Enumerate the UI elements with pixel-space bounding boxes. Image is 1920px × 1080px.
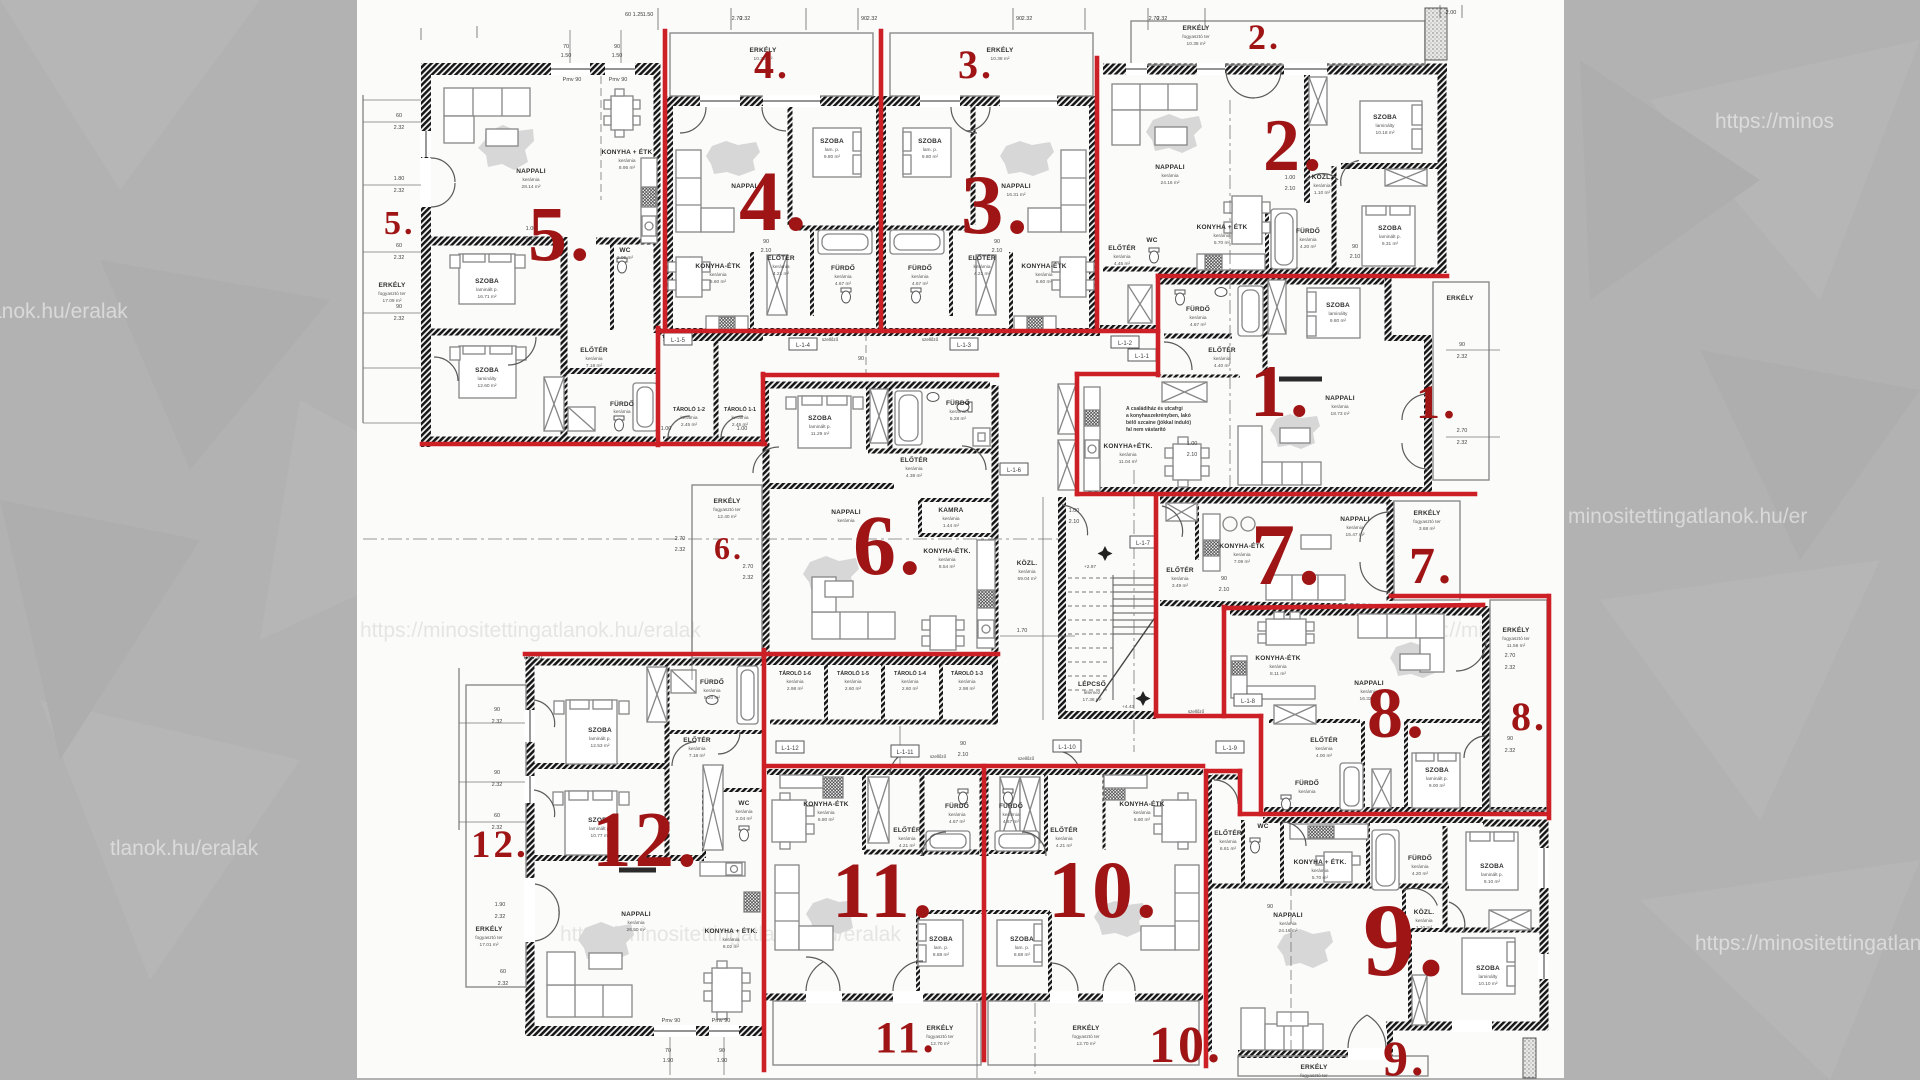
svg-text:TÁROLÓ 1-5: TÁROLÓ 1-5 [837, 669, 869, 677]
svg-text:kerámia: kerámia [1189, 315, 1206, 321]
svg-text:ELŐTÉR: ELŐTÉR [1208, 345, 1236, 354]
svg-text:fogyasztó ter: fogyasztó ter [713, 507, 741, 513]
svg-text:9.31 m²: 9.31 m² [1382, 241, 1399, 247]
svg-text:SZOBA: SZOBA [475, 278, 499, 285]
svg-text:SZOBA: SZOBA [820, 138, 844, 145]
svg-text:ELŐTÉR: ELŐTÉR [900, 455, 928, 464]
svg-text:12.60 m²: 12.60 m² [478, 383, 497, 389]
svg-text:KONYHA + ÉTK: KONYHA + ÉTK [1197, 222, 1248, 231]
svg-text:8.: 8. [1367, 673, 1427, 753]
svg-text:ERKÉLY: ERKÉLY [1183, 23, 1210, 32]
svg-text:kerámia: kerámia [1133, 810, 1150, 816]
svg-text:4.00 m²: 4.00 m² [1316, 753, 1333, 759]
svg-text:KONYHA + ÉTK: KONYHA + ÉTK [602, 147, 653, 156]
svg-text:10.38 m²: 10.38 m² [1187, 41, 1206, 47]
svg-text:90: 90 [1352, 244, 1358, 250]
svg-text:9.00 m²: 9.00 m² [1429, 783, 1446, 789]
svg-text:10.: 10. [1149, 1017, 1223, 1074]
svg-text:kerámia: kerámia [1171, 576, 1188, 582]
svg-text:KONYHA-ÉTK: KONYHA-ÉTK [1255, 653, 1300, 662]
svg-text:KONYHA-ÉTK: KONYHA-ÉTK [695, 261, 740, 270]
svg-text:kerámia: kerámia [735, 809, 752, 815]
svg-text:9.80 m²: 9.80 m² [922, 154, 939, 160]
svg-text:kerámia: kerámia [1298, 789, 1315, 795]
svg-text:laminált p.: laminált p. [1481, 872, 1503, 878]
svg-text:fogyasztó ter: fogyasztó ter [475, 935, 503, 941]
svg-text:2.32: 2.32 [1505, 665, 1516, 671]
svg-text:2.32: 2.32 [867, 16, 878, 22]
svg-text:KÖZL.: KÖZL. [1017, 558, 1038, 567]
svg-text:5.70 m²: 5.70 m² [1214, 240, 1231, 246]
svg-text:1.00: 1.00 [737, 426, 748, 432]
svg-text:16.71 m²: 16.71 m² [478, 294, 497, 300]
svg-text:SZOBA: SZOBA [929, 936, 953, 943]
svg-text:laminálty: laminálty [1329, 311, 1349, 317]
svg-text:5.: 5. [384, 205, 416, 242]
svg-text:9.80 m²: 9.80 m² [1330, 318, 1347, 324]
svg-text:6.61 m²: 6.61 m² [1220, 846, 1237, 852]
svg-text:bèlő szcaine (jókkal induló): bèlő szcaine (jókkal induló) [1126, 420, 1191, 426]
svg-text:ELŐTÉR: ELŐTÉR [968, 253, 996, 262]
svg-text:L-1-11: L-1-11 [897, 750, 915, 756]
svg-text:kerámia: kerámia [1315, 746, 1332, 752]
svg-text:kerámia: kerámia [786, 679, 803, 685]
svg-text:2.10: 2.10 [1187, 452, 1198, 458]
svg-text:11.: 11. [875, 1013, 937, 1062]
svg-text:Pmv 90: Pmv 90 [662, 1018, 681, 1024]
svg-text:2.32: 2.32 [1022, 16, 1033, 22]
svg-text:ERKÉLY: ERKÉLY [1073, 1023, 1100, 1032]
svg-text:szellőző: szellőző [1018, 756, 1035, 761]
svg-text:a konyhaszekrényben, lakó: a konyhaszekrényben, lakó [1126, 413, 1191, 419]
svg-text:11.56 m²: 11.56 m² [1507, 643, 1526, 649]
svg-text:90: 90 [1221, 576, 1227, 582]
svg-text:laminált p.: laminált p. [1379, 234, 1401, 240]
svg-text:1.50: 1.50 [643, 12, 654, 18]
svg-text:+4.43: +4.43 [1122, 704, 1134, 710]
svg-text:2.32: 2.32 [1457, 354, 1468, 360]
svg-text:2.70: 2.70 [743, 564, 754, 570]
svg-text:2.32: 2.32 [492, 782, 503, 788]
svg-text:kerámia: kerámia [1346, 525, 1363, 531]
svg-text:FÜRDŐ: FÜRDŐ [908, 263, 932, 272]
svg-text:ELŐTÉR: ELŐTÉR [1310, 735, 1338, 744]
svg-text:fal nem vástarító: fal nem vástarító [1126, 427, 1166, 433]
svg-text:kerámia: kerámia [1002, 812, 1019, 818]
svg-text:4.: 4. [739, 153, 810, 249]
svg-text:FÜRDŐ: FÜRDŐ [1296, 226, 1320, 235]
svg-text:kerámia: kerámia [1311, 868, 1328, 874]
svg-text:fogyasztó ter: fogyasztó ter [1502, 636, 1530, 642]
svg-text:4.45 m²: 4.45 m² [1114, 261, 1131, 267]
svg-text:2.06 m²: 2.06 m² [617, 255, 634, 261]
svg-text:kerámia: kerámia [1161, 173, 1178, 179]
svg-text:6.: 6. [853, 497, 924, 593]
svg-text:ERKÉLY: ERKÉLY [1503, 625, 1530, 634]
svg-text:ERKÉLY: ERKÉLY [1414, 508, 1441, 517]
svg-text:Pmv 90: Pmv 90 [563, 77, 582, 83]
svg-text:kerámia: kerámia [613, 409, 630, 415]
svg-text:laminált p.: laminált p. [1426, 776, 1448, 782]
svg-text:8.88 m²: 8.88 m² [933, 952, 950, 958]
svg-text:5.70 m²: 5.70 m² [1312, 875, 1329, 881]
svg-text:kerámia: kerámia [1035, 272, 1052, 278]
svg-text:laminált p.: laminált p. [476, 287, 498, 293]
svg-text:kerámia: kerámia [1233, 552, 1250, 558]
svg-text:kerámia: kerámia [709, 272, 726, 278]
svg-text:TÁROLÓ 1-4: TÁROLÓ 1-4 [894, 669, 926, 677]
svg-text:1.: 1. [1416, 376, 1458, 429]
svg-text:12.40 m²: 12.40 m² [718, 514, 737, 520]
svg-text:11.04 m²: 11.04 m² [1119, 459, 1138, 465]
svg-text:lam. p.: lam. p. [934, 945, 948, 951]
svg-text:SZOBA: SZOBA [918, 138, 942, 145]
svg-text:kerámia: kerámia [1213, 233, 1230, 239]
svg-text:12.70 m²: 12.70 m² [1077, 1041, 1096, 1047]
svg-text:5.20 m²: 5.20 m² [704, 695, 721, 701]
svg-text:kerámia: kerámia [627, 920, 644, 926]
svg-text:kerámia: kerámia [703, 688, 720, 694]
svg-text:6.80 m²: 6.80 m² [1134, 817, 1151, 823]
svg-text:90: 90 [719, 1048, 725, 1054]
svg-text:4.67 m²: 4.67 m² [912, 281, 929, 287]
svg-text:kerámia: kerámia [522, 177, 539, 183]
svg-text:2.70: 2.70 [1457, 428, 1468, 434]
svg-text:ERKÉLY: ERKÉLY [476, 924, 503, 933]
svg-text:fogyasztó ter: fogyasztó ter [1413, 519, 1441, 525]
svg-text:4.: 4. [754, 42, 790, 87]
svg-text:1.50: 1.50 [612, 53, 623, 59]
svg-text:7.09 m²: 7.09 m² [1234, 559, 1251, 565]
svg-text:4.20 m²: 4.20 m² [1300, 244, 1317, 250]
svg-text:L-1-6: L-1-6 [1007, 468, 1022, 474]
svg-text:15.47 m²: 15.47 m² [1346, 532, 1365, 538]
svg-text:WC: WC [1257, 823, 1268, 830]
svg-text:kerámia: kerámia [1331, 404, 1348, 410]
svg-text:24.16 m²: 24.16 m² [1279, 928, 1298, 934]
svg-text:4.67 m²: 4.67 m² [949, 819, 966, 825]
svg-text:ELŐTÉR: ELŐTÉR [1214, 828, 1242, 837]
svg-text:4.21 m²: 4.21 m² [773, 271, 790, 277]
svg-text:kerámia: kerámia [731, 415, 748, 421]
svg-text:FÜRDŐ: FÜRDŐ [1186, 304, 1210, 313]
svg-text:laminált p.: laminált p. [809, 424, 831, 430]
svg-text:https://minositettingatlanok.h: https://minositettingatlanok.hu/eralak [360, 619, 701, 642]
svg-text:SZOBA: SZOBA [1476, 965, 1500, 972]
svg-text:17.36 m²: 17.36 m² [1083, 697, 1102, 703]
svg-text:kerámia: kerámia [973, 264, 990, 270]
svg-text:2.98 m²: 2.98 m² [787, 686, 804, 692]
svg-text:L-1-1: L-1-1 [1135, 354, 1150, 360]
svg-text:fogyasztó ter: fogyasztó ter [1300, 1073, 1328, 1079]
svg-text:2.32: 2.32 [1457, 440, 1468, 446]
svg-text:FÜRDŐ: FÜRDŐ [945, 801, 969, 810]
svg-text:FÜRDŐ: FÜRDŐ [610, 399, 634, 408]
svg-text:4.67 m²: 4.67 m² [835, 281, 852, 287]
svg-text:szellőző: szellőző [922, 337, 939, 342]
svg-text:SZOBA: SZOBA [588, 727, 612, 734]
svg-text:tlanok.hu/eralak: tlanok.hu/eralak [110, 837, 259, 860]
svg-text:laminálty: laminálty [1376, 123, 1396, 129]
svg-text:NAPPALI: NAPPALI [516, 168, 545, 175]
svg-text:7.18 m²: 7.18 m² [689, 753, 706, 759]
svg-text:8.54 m²: 8.54 m² [939, 564, 956, 570]
svg-text:ERKÉLY: ERKÉLY [714, 496, 741, 505]
svg-text:8.95 m²: 8.95 m² [619, 165, 636, 171]
svg-text:kerámia: kerámia [844, 679, 861, 685]
svg-text:FÜRDŐ: FÜRDŐ [1295, 778, 1319, 787]
svg-text:kerámia: kerámia [1279, 921, 1296, 927]
svg-text:ELŐTÉR: ELŐTÉR [1050, 825, 1078, 834]
svg-text:anok.hu/eralak: anok.hu/eralak [0, 300, 128, 323]
svg-text:KONYHA+ÉTK.: KONYHA+ÉTK. [1104, 441, 1153, 450]
svg-text:2.10: 2.10 [1350, 254, 1361, 260]
svg-text:1.00: 1.00 [1069, 508, 1080, 514]
svg-text:70: 70 [665, 1048, 671, 1054]
svg-text:90: 90 [494, 770, 500, 776]
svg-text:1.10 m²: 1.10 m² [1314, 190, 1331, 196]
svg-text:+2.97: +2.97 [1084, 564, 1096, 570]
svg-text:5.28 m²: 5.28 m² [950, 416, 967, 422]
svg-text:90: 90 [614, 44, 620, 50]
svg-text:SZOBA: SZOBA [1378, 225, 1402, 232]
svg-text:Pmv 90: Pmv 90 [712, 1018, 731, 1024]
svg-text:TÁROLÓ 1-1: TÁROLÓ 1-1 [724, 405, 756, 413]
svg-text:kerámia: kerámia [772, 264, 789, 270]
svg-text:NAPPALI: NAPPALI [1155, 164, 1184, 171]
svg-text:2.00: 2.00 [1446, 10, 1457, 16]
svg-text:FÜRDŐ: FÜRDŐ [831, 263, 855, 272]
svg-text:4.40 m²: 4.40 m² [1214, 363, 1231, 369]
svg-text:2.10: 2.10 [1069, 519, 1080, 525]
svg-text:Pmv 90: Pmv 90 [609, 77, 628, 83]
svg-text:60: 60 [625, 12, 631, 18]
svg-text:90: 90 [960, 741, 966, 747]
svg-text:TÁROLÓ 1-6: TÁROLÓ 1-6 [779, 669, 811, 677]
svg-text:KONYHA-ÉTK: KONYHA-ÉTK [1119, 799, 1164, 808]
svg-text:ELŐTÉR: ELŐTÉR [1108, 243, 1136, 252]
svg-text:2.32: 2.32 [1157, 16, 1168, 22]
svg-text:1.: 1. [1250, 351, 1312, 433]
svg-text:4.20 m²: 4.20 m² [1412, 871, 1429, 877]
svg-text:1.50: 1.50 [561, 53, 572, 59]
svg-text:2.32: 2.32 [394, 255, 405, 261]
svg-text:ELŐTÉR: ELŐTÉR [767, 253, 795, 262]
svg-text:12.: 12. [592, 797, 700, 884]
svg-text:1.44 m²: 1.44 m² [943, 523, 960, 529]
svg-text:kerámia: kerámia [898, 836, 915, 842]
svg-text:minositettingatlanok.hu/er: minositettingatlanok.hu/er [1568, 505, 1807, 528]
svg-text:kerámia: kerámia [618, 158, 635, 164]
svg-text:3.: 3. [958, 42, 994, 87]
svg-text:1.80: 1.80 [394, 176, 405, 182]
svg-text:szellőző: szellőző [822, 337, 839, 342]
svg-text:NAPPALI: NAPPALI [1340, 516, 1369, 523]
svg-text:kerámia: kerámia [1411, 864, 1428, 870]
svg-text:kerámia: kerámia [938, 557, 955, 563]
svg-text:A családiház és utcafrgi: A családiház és utcafrgi [1126, 406, 1183, 412]
svg-text:laminálty: laminálty [478, 376, 498, 382]
svg-text:lam. p.: lam. p. [825, 147, 839, 153]
svg-text:8.88 m²: 8.88 m² [1014, 952, 1031, 958]
svg-text:18.73 m²: 18.73 m² [1331, 411, 1350, 417]
svg-text:WC: WC [738, 800, 749, 807]
svg-text:90: 90 [1459, 342, 1465, 348]
svg-text:24.16 m²: 24.16 m² [1161, 180, 1180, 186]
svg-text:12.: 12. [471, 823, 529, 866]
svg-text:FÜRDŐ: FÜRDŐ [946, 398, 970, 407]
svg-text:fogyasztó ter: fogyasztó ter [1072, 1034, 1100, 1040]
svg-text:kerámia: kerámia [680, 415, 697, 421]
svg-text:2.32: 2.32 [394, 125, 405, 131]
svg-text:4.67 m²: 4.67 m² [1190, 322, 1207, 328]
svg-text:1.90: 1.90 [663, 1058, 674, 1064]
svg-text:kerámia: kerámia [834, 274, 851, 280]
svg-text:kerámia: kerámia [1055, 836, 1072, 842]
svg-text:SZOBA: SZOBA [475, 367, 499, 374]
svg-text:11.: 11. [832, 848, 935, 935]
svg-text:TÁROLÓ 1-2: TÁROLÓ 1-2 [673, 405, 705, 413]
svg-text:SZOBA: SZOBA [1010, 936, 1034, 943]
svg-text:ERKÉLY: ERKÉLY [1447, 293, 1474, 302]
svg-text:1.90: 1.90 [495, 902, 506, 908]
svg-text:TÁROLÓ 1-3: TÁROLÓ 1-3 [951, 669, 983, 677]
svg-text:3.68 m²: 3.68 m² [1419, 526, 1436, 532]
svg-text:4.38 m²: 4.38 m² [906, 473, 923, 479]
svg-text:90: 90 [1267, 904, 1273, 910]
svg-text:1.90: 1.90 [717, 1058, 728, 1064]
svg-text:9.10 m²: 9.10 m² [1484, 879, 1501, 885]
svg-text:kerámia: kerámia [1299, 237, 1316, 243]
svg-text:2.60 m²: 2.60 m² [902, 686, 919, 692]
svg-text:2.32: 2.32 [394, 316, 405, 322]
svg-text:6.80 m²: 6.80 m² [818, 817, 835, 823]
svg-text:https://minositettingatlanok.h: https://minositettingatlanok.h [1695, 932, 1920, 955]
svg-text:ELŐTÉR: ELŐTÉR [1166, 565, 1194, 574]
svg-text:szellőző: szellőző [930, 754, 947, 759]
svg-text:L-1-7: L-1-7 [1136, 541, 1151, 547]
svg-text:2.70: 2.70 [1505, 653, 1516, 659]
svg-text:ELŐTÉR: ELŐTÉR [893, 825, 921, 834]
svg-text:fogyasztó ter: fogyasztó ter [378, 291, 406, 297]
svg-text:FÜRDŐ: FÜRDŐ [700, 677, 724, 686]
svg-text:L-1-8: L-1-8 [1241, 699, 1256, 705]
svg-text:kerámia: kerámia [1018, 569, 1035, 575]
svg-text:KONYHA + ÉTK.: KONYHA + ÉTK. [1294, 857, 1347, 866]
svg-text:L-1-12: L-1-12 [781, 746, 799, 752]
svg-text:10.10 m²: 10.10 m² [1479, 981, 1498, 987]
svg-text:kerámia: kerámia [901, 679, 918, 685]
svg-text:SZOBA: SZOBA [1480, 863, 1504, 870]
svg-text:KONYHA + ÉTK.: KONYHA + ÉTK. [705, 926, 758, 935]
svg-text:L-1-9: L-1-9 [1223, 746, 1238, 752]
svg-text:https://minos: https://minos [1715, 110, 1834, 133]
svg-text:2.98 m²: 2.98 m² [959, 686, 976, 692]
svg-text:fogyasztó ter: fogyasztó ter [1182, 34, 1210, 40]
svg-text:kerámia: kerámia [948, 812, 965, 818]
svg-text:NAPPALI: NAPPALI [1325, 395, 1354, 402]
svg-text:L-1-2: L-1-2 [1118, 341, 1133, 347]
svg-text:2.: 2. [1248, 17, 1281, 57]
svg-text:26.50 m²: 26.50 m² [627, 927, 646, 933]
svg-text:10.: 10. [1048, 844, 1160, 935]
svg-text:SZOBA: SZOBA [1373, 114, 1397, 121]
svg-text:1.00: 1.00 [1187, 441, 1198, 447]
svg-text:4.21 m²: 4.21 m² [974, 271, 991, 277]
svg-text:2.60 m²: 2.60 m² [845, 686, 862, 692]
svg-text:ELŐTÉR: ELŐTÉR [683, 735, 711, 744]
svg-text:8.11 m²: 8.11 m² [1270, 671, 1286, 677]
svg-text:LÉPCSŐ: LÉPCSŐ [1078, 679, 1106, 688]
svg-text:8.02 m²: 8.02 m² [723, 944, 740, 950]
svg-text:6.: 6. [714, 530, 744, 566]
svg-text:2.32: 2.32 [492, 719, 503, 725]
svg-text:FÜRDŐ: FÜRDŐ [999, 801, 1023, 810]
svg-text:kerámia: kerámia [1119, 452, 1136, 458]
svg-text:90: 90 [858, 356, 864, 362]
svg-text:kerámia: kerámia [722, 937, 739, 943]
svg-text:laminálty: laminálty [1479, 974, 1499, 980]
svg-text:2.32: 2.32 [394, 188, 405, 194]
svg-text:SZOBA: SZOBA [808, 415, 832, 422]
svg-text:L-1-3: L-1-3 [957, 343, 972, 349]
svg-text:17.01 m²: 17.01 m² [480, 942, 499, 948]
svg-text:kerámia: kerámia [949, 409, 966, 415]
svg-text:kerámia: kerámia [817, 810, 834, 816]
svg-text:SZOBA: SZOBA [1326, 302, 1350, 309]
svg-text:60: 60 [396, 113, 402, 119]
svg-text:kerámia: kerámia [911, 274, 928, 280]
svg-text:2.45 m²: 2.45 m² [681, 422, 698, 428]
svg-text:L-1-5: L-1-5 [671, 338, 686, 344]
svg-text:12.53 m²: 12.53 m² [591, 743, 610, 749]
svg-text:6.60 m²: 6.60 m² [710, 279, 727, 285]
svg-text:90: 90 [494, 707, 500, 713]
svg-text:11.29 m²: 11.29 m² [811, 431, 830, 437]
svg-text:SZOBA: SZOBA [1425, 767, 1449, 774]
svg-text:ERKÉLY: ERKÉLY [1301, 1062, 1328, 1071]
svg-text:kerámia: kerámia [1269, 664, 1286, 670]
svg-text:2.: 2. [1263, 105, 1325, 187]
svg-text:9.80 m²: 9.80 m² [824, 154, 841, 160]
svg-text:kerámia: kerámia [1219, 839, 1236, 845]
svg-text:NAPPALI: NAPPALI [1273, 912, 1302, 919]
svg-text:5.: 5. [528, 190, 593, 277]
svg-text:2.32: 2.32 [675, 547, 686, 553]
svg-text:8.: 8. [1511, 694, 1547, 739]
svg-text:lélemez: lélemez [1084, 690, 1101, 696]
svg-text:3.49 m²: 3.49 m² [1172, 583, 1189, 589]
svg-text:L-1-10: L-1-10 [1058, 745, 1076, 751]
svg-text:L-1-4: L-1-4 [796, 343, 811, 349]
svg-text:lam. p.: lam. p. [1015, 945, 1029, 951]
svg-text:KONYHA-ÉTK: KONYHA-ÉTK [1021, 261, 1066, 270]
svg-text:2.04 m²: 2.04 m² [736, 816, 753, 822]
svg-text:7.18 m²: 7.18 m² [586, 363, 603, 369]
svg-text:FÜRDŐ: FÜRDŐ [1408, 853, 1432, 862]
svg-text:kerámia: kerámia [942, 516, 959, 522]
svg-text:70: 70 [563, 44, 569, 50]
svg-text:60: 60 [396, 243, 402, 249]
svg-text:3.: 3. [961, 158, 1031, 252]
svg-text:2.32: 2.32 [498, 981, 509, 987]
svg-text:ERKÉLY: ERKÉLY [379, 280, 406, 289]
svg-text:7.: 7. [1251, 507, 1323, 604]
svg-text:2.10: 2.10 [1219, 587, 1230, 593]
svg-text:kerámia: kerámia [958, 679, 975, 685]
svg-text:NAPPALI: NAPPALI [621, 911, 650, 918]
svg-text:90: 90 [396, 304, 402, 310]
